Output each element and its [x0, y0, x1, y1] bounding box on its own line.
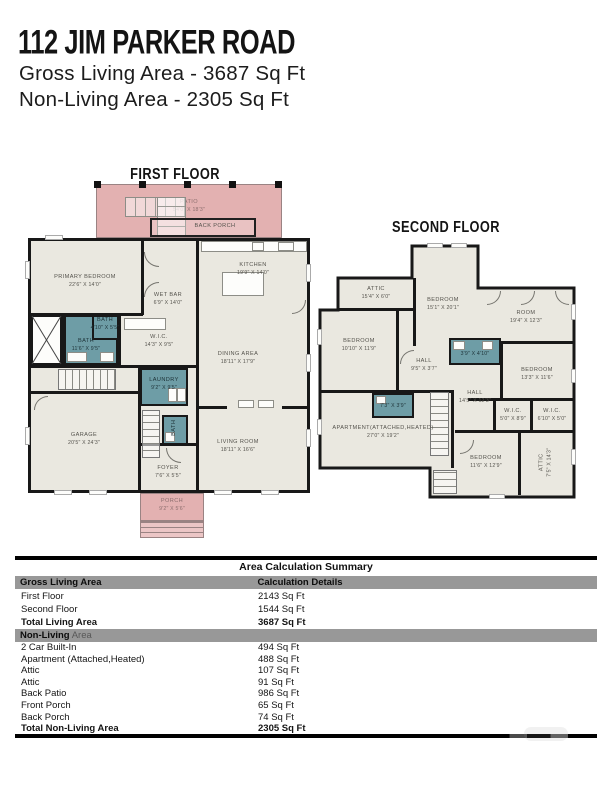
gross-living-header-row: Gross Living Area Calculation Details: [15, 576, 597, 589]
stairs: [142, 410, 160, 458]
watermark: [524, 727, 568, 741]
row-label: Back Porch: [21, 712, 70, 723]
window: [572, 370, 575, 382]
wall: [493, 400, 496, 432]
table-bottom-border: [15, 734, 597, 738]
window: [572, 305, 575, 319]
patio-pillar: [229, 181, 236, 188]
row-value: 494 Sq Ft: [258, 642, 299, 653]
wall: [451, 390, 454, 468]
row-value: 65 Sq Ft: [258, 700, 294, 711]
table-title: Area Calculation Summary: [15, 560, 597, 576]
table-row-total-living: Total Living Area 3687 Sq Ft: [15, 615, 597, 628]
stairs: [430, 392, 449, 456]
row-label: Attic: [21, 665, 39, 676]
washer: [168, 388, 177, 402]
second-floor-plan: [317, 243, 579, 499]
table-row: First Floor 2143 Sq Ft: [15, 589, 597, 602]
gross-living-area-line: Gross Living Area - 3687 Sq Ft: [19, 62, 305, 86]
row-label: 2 Car Built-In: [21, 642, 76, 653]
area-calculation-table: Area Calculation Summary Gross Living Ar…: [15, 556, 597, 738]
wall: [530, 400, 533, 432]
front-porch: [140, 493, 204, 521]
row-label: Total Living Area: [21, 617, 97, 628]
row-value: 3687 Sq Ft: [258, 617, 306, 628]
powder-sink: [165, 432, 175, 442]
bath-sink: [453, 341, 465, 350]
wall: [199, 406, 227, 409]
window: [46, 236, 62, 239]
window: [318, 330, 321, 344]
window: [490, 495, 504, 498]
non-living-header-row: Non-Living Area: [15, 629, 597, 642]
row-value: 74 Sq Ft: [258, 712, 294, 723]
window: [318, 420, 321, 434]
wall: [31, 391, 140, 394]
row-label: Apartment (Attached,Heated): [21, 654, 145, 665]
row-value: 1544 Sq Ft: [258, 604, 304, 615]
back-porch-structure: [150, 218, 256, 237]
dining-cabinet: [258, 400, 274, 408]
floor-plan-page: { "header": { "title": "112 JIM PARKER R…: [0, 0, 612, 792]
stairs: [58, 369, 116, 390]
table-row-total-non-living: Total Non-Living Area 2305 Sq Ft: [15, 723, 597, 735]
table-row: Front Porch 65 Sq Ft: [15, 700, 597, 712]
page-title: 112 JIM PARKER ROAD: [18, 22, 295, 62]
patio-pillar: [275, 181, 282, 188]
bath-vanity: [67, 352, 87, 362]
window: [262, 491, 278, 494]
non-living-area-line: Non-Living Area - 2305 Sq Ft: [19, 88, 289, 112]
window: [90, 491, 106, 494]
row-value: 107 Sq Ft: [258, 665, 299, 676]
window: [215, 491, 231, 494]
row-label: Back Patio: [21, 688, 66, 699]
window: [26, 262, 29, 278]
table-row: Attic 107 Sq Ft: [15, 665, 597, 677]
wall: [282, 406, 307, 409]
window: [55, 491, 71, 494]
row-value: 488 Sq Ft: [258, 654, 299, 665]
window: [307, 355, 310, 371]
stairs: [433, 470, 457, 494]
row-value: 91 Sq Ft: [258, 677, 294, 688]
patio-pillar: [184, 181, 191, 188]
dryer: [177, 388, 186, 402]
col-header-gross-living: Gross Living Area: [20, 577, 101, 588]
x-brace-icon: [31, 315, 62, 365]
wall: [338, 308, 415, 311]
row-label: First Floor: [21, 591, 64, 602]
patio-pillar: [94, 181, 101, 188]
row-value: 2305 Sq Ft: [258, 723, 306, 734]
wall: [396, 310, 399, 392]
kitchen-island: [222, 272, 264, 296]
bath-toilet: [100, 352, 114, 362]
wall: [413, 310, 416, 346]
wall: [455, 430, 574, 433]
non-living-bold: Non-Living: [20, 630, 70, 641]
col-header-calculation-details: Calculation Details: [215, 577, 385, 588]
row-label: Front Porch: [21, 700, 71, 711]
non-living-rest: Area: [70, 630, 92, 641]
window: [428, 244, 442, 247]
small-bath-room: [92, 315, 119, 340]
window: [307, 430, 310, 446]
bath-toilet: [482, 341, 493, 350]
row-label: Total Non-Living Area: [21, 723, 119, 734]
window: [307, 265, 310, 281]
table-row: Attic 91 Sq Ft: [15, 676, 597, 688]
wall: [518, 432, 521, 495]
wall: [196, 241, 199, 335]
table-row: Back Porch 74 Sq Ft: [15, 711, 597, 723]
table-row: Apartment (Attached,Heated) 488 Sq Ft: [15, 653, 597, 665]
col-header-non-living: Non-Living Area: [20, 630, 92, 641]
front-porch-steps: [140, 521, 204, 538]
patio-pillar: [139, 181, 146, 188]
row-value: 2143 Sq Ft: [258, 591, 304, 602]
wall: [196, 335, 199, 490]
window: [452, 244, 466, 247]
window: [572, 450, 575, 464]
row-value: 986 Sq Ft: [258, 688, 299, 699]
dining-cabinet: [238, 400, 254, 408]
row-label: Second Floor: [21, 604, 78, 615]
wic-closet: [124, 318, 166, 330]
row-label: Attic: [21, 677, 39, 688]
second-floor-heading: SECOND FLOOR: [392, 219, 488, 237]
table-row: Back Patio 986 Sq Ft: [15, 688, 597, 700]
table-row: Second Floor 1544 Sq Ft: [15, 602, 597, 615]
kitchen-sink: [252, 242, 264, 251]
kitchen-stove: [278, 242, 294, 251]
wall: [468, 398, 574, 401]
wall: [413, 278, 416, 311]
window: [26, 428, 29, 444]
table-row: 2 Car Built-In 494 Sq Ft: [15, 642, 597, 654]
bath-sink: [376, 396, 386, 404]
